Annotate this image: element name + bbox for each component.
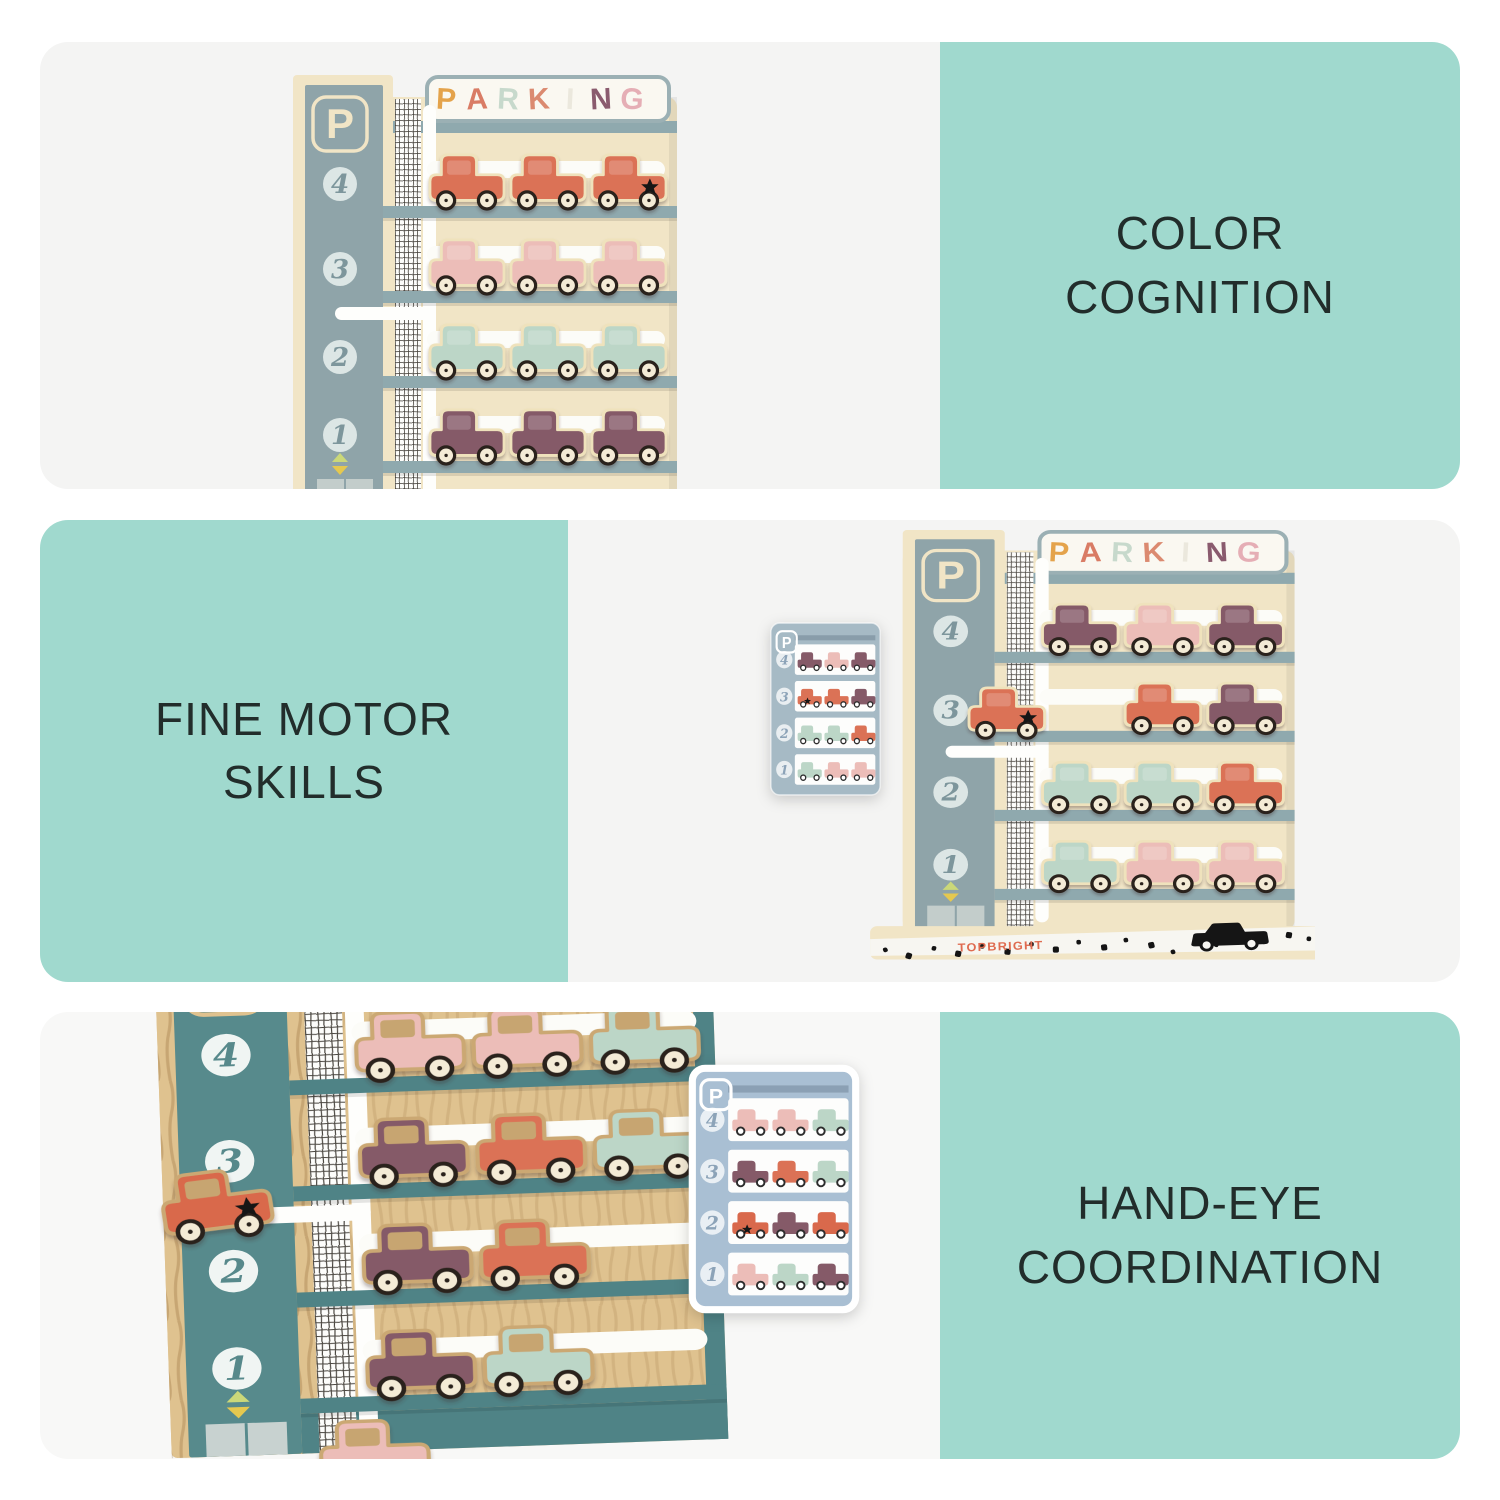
benefit-line: HAND-EYE (1077, 1172, 1323, 1235)
toy-base-ramp: TOPBRIGHT (870, 922, 1315, 960)
brand-logo: TOPBRIGHT (957, 938, 1043, 954)
svg-text:K: K (1142, 536, 1166, 568)
elevator-doors (206, 1422, 288, 1457)
toy-photo-closeup: P 4 3 2 1 P4321 (40, 1012, 940, 1459)
parking-sign: PARKING (1039, 532, 1286, 573)
toy-photo-front: PARKING P 4 3 2 1 (40, 42, 940, 489)
toy-photo-closeup-panel: P 4 3 2 1 P4321 (40, 1012, 940, 1459)
svg-text:1: 1 (223, 1350, 251, 1389)
benefit-line: COORDINATION (1017, 1236, 1383, 1299)
svg-text:P: P (1048, 536, 1070, 568)
toy-photo-full: P4321 PARKING P 4 3 2 1 TOPBRIGHT (568, 520, 1460, 982)
svg-text:4: 4 (706, 1111, 719, 1132)
svg-text:G: G (1236, 536, 1262, 569)
product-infographic: PARKING P 4 3 2 1 COLOR COGNITION FINE M… (0, 0, 1500, 1500)
svg-text:N: N (589, 82, 612, 116)
svg-text:2: 2 (779, 727, 789, 742)
svg-text:P: P (782, 636, 792, 652)
svg-text:A: A (465, 82, 488, 116)
svg-text:2: 2 (219, 1252, 248, 1291)
svg-text:G: G (620, 82, 645, 116)
svg-text:R: R (1110, 536, 1134, 568)
benefit-line: COLOR (1116, 202, 1285, 265)
svg-text:3: 3 (706, 1162, 719, 1183)
parking-sign: PARKING (427, 77, 669, 121)
svg-text:I: I (1180, 537, 1190, 569)
floor-number: 4 (933, 616, 968, 648)
svg-text:P: P (435, 83, 457, 117)
benefit-panel-hand-eye: HAND-EYE COORDINATION (940, 1012, 1460, 1459)
floor-number: 3 (323, 252, 357, 286)
svg-text:N: N (1205, 536, 1229, 568)
svg-text:P: P (709, 1084, 723, 1108)
feature-band-hand-eye: P 4 3 2 1 P4321 HAND-EYE COORDINATION (40, 1012, 1460, 1459)
svg-text:4: 4 (331, 170, 349, 200)
svg-text:4: 4 (212, 1036, 240, 1075)
svg-text:I: I (565, 83, 575, 116)
svg-text:2: 2 (940, 778, 960, 807)
toy-photo-full-panel: P4321 PARKING P 4 3 2 1 TOPBRIGHT (568, 520, 1460, 982)
elevator-doors (317, 479, 373, 489)
svg-text:P: P (326, 100, 354, 147)
svg-text:1: 1 (941, 850, 959, 879)
svg-text:3: 3 (941, 696, 959, 725)
benefit-line: FINE MOTOR (155, 688, 453, 751)
svg-text:1: 1 (706, 1265, 719, 1286)
svg-text:1: 1 (331, 421, 349, 451)
benefit-line: COGNITION (1065, 266, 1335, 329)
floor-number: 1 (323, 418, 357, 452)
benefit-line: SKILLS (223, 751, 385, 814)
toy-photo-front-panel: PARKING P 4 3 2 1 (40, 42, 940, 489)
floor-number: 3 (933, 695, 968, 727)
benefit-label-color-cognition: COLOR COGNITION (940, 42, 1460, 489)
benefit-panel-fine-motor: FINE MOTOR SKILLS (40, 520, 568, 982)
svg-text:2: 2 (705, 1214, 719, 1235)
floor-number: 2 (933, 776, 968, 808)
svg-text:4: 4 (780, 653, 789, 668)
svg-text:3: 3 (780, 690, 789, 705)
floor-number: 4 (323, 167, 357, 201)
svg-text:4: 4 (941, 617, 959, 646)
svg-text:P: P (936, 553, 965, 597)
benefit-label-hand-eye: HAND-EYE COORDINATION (940, 1012, 1460, 1459)
floor-number: 2 (323, 340, 357, 374)
benefit-panel-color-cognition: COLOR COGNITION (940, 42, 1460, 489)
svg-text:K: K (527, 82, 551, 116)
svg-text:2: 2 (330, 343, 349, 373)
feature-band-color-cognition: PARKING P 4 3 2 1 COLOR COGNITION (40, 42, 1460, 489)
benefit-label-fine-motor: FINE MOTOR SKILLS (40, 520, 568, 982)
floor-number: 1 (933, 849, 968, 881)
svg-text:3: 3 (331, 255, 349, 285)
svg-text:A: A (1078, 536, 1102, 568)
svg-text:1: 1 (780, 763, 789, 778)
svg-text:R: R (496, 82, 520, 116)
feature-band-fine-motor: FINE MOTOR SKILLS P4321 PARKING P 4 3 2 … (40, 520, 1460, 982)
